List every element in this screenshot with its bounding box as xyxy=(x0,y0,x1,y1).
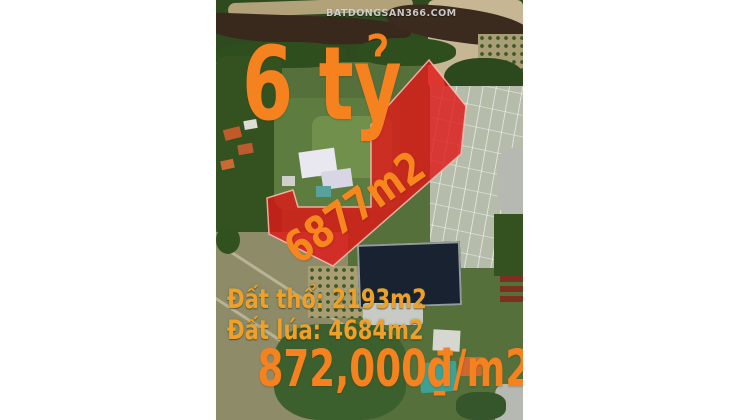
price-per-m2-label: 872,000₫/m2 xyxy=(257,344,481,395)
satellite-photo: BATDONGSAN366.COM 6 tỷ 6877m2 Đất thổ: 2… xyxy=(216,0,523,420)
listing-image-canvas: BATDONGSAN366.COM 6 tỷ 6877m2 Đất thổ: 2… xyxy=(0,0,740,420)
land-residential-label: Đất thổ: 2193m2 xyxy=(227,286,427,313)
price-total-label: 6 tỷ xyxy=(242,34,402,136)
watermark-text: BATDONGSAN366.COM xyxy=(326,9,457,19)
